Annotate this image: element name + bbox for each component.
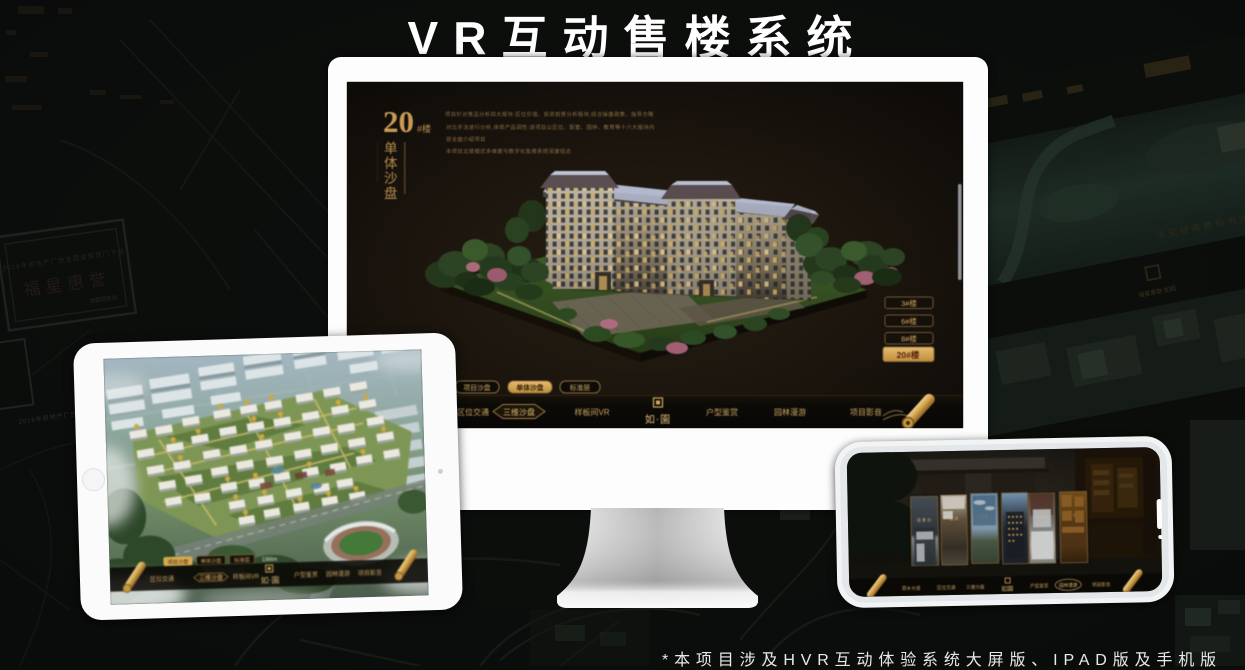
- svg-text:项目影音: 项目影音: [850, 407, 882, 417]
- svg-text:户型鉴赏: 户型鉴赏: [706, 407, 738, 417]
- svg-text:区位交通: 区位交通: [457, 407, 489, 417]
- svg-text:沙: 沙: [384, 171, 398, 186]
- svg-text:样板间VR: 样板间VR: [574, 407, 609, 417]
- svg-text:8#楼: 8#楼: [901, 334, 917, 344]
- svg-text:如園: 如園: [1001, 585, 1013, 593]
- svg-text:#楼: #楼: [417, 123, 431, 134]
- svg-text:如·園: 如·園: [645, 413, 671, 426]
- svg-text:容全面介绍项目: 容全面介绍项目: [446, 135, 486, 143]
- svg-text:本项目文旅模式多维度与数字化售楼系统深度结合: 本项目文旅模式多维度与数字化售楼系统深度结合: [446, 147, 572, 155]
- svg-text:标准层: 标准层: [570, 383, 591, 392]
- svg-text:园林漫游: 园林漫游: [774, 407, 806, 417]
- svg-text:盘: 盘: [384, 185, 398, 201]
- svg-text:1366m: 1366m: [262, 557, 277, 563]
- svg-text:项目针对竞品分析四大版块:区位价值、投资前景分析版块,结合操: 项目针对竞品分析四大版块:区位价值、投资前景分析版块,结合操盘政策、指导方略: [445, 110, 654, 118]
- svg-text:20: 20: [383, 104, 414, 139]
- svg-text:三维沙盘: 三维沙盘: [503, 407, 535, 417]
- svg-text:项目沙盘: 项目沙盘: [463, 383, 490, 392]
- svg-text:对比手法进行分析,体现产品调性;该项目以区位、配套、园林、教: 对比手法进行分析,体现产品调性;该项目以区位、配套、园林、教育等十六大版块内: [446, 123, 655, 131]
- svg-text:3#楼: 3#楼: [901, 298, 917, 308]
- svg-text:如·園: 如·園: [261, 575, 280, 586]
- svg-text:单: 单: [384, 141, 398, 156]
- svg-text:单体沙盘: 单体沙盘: [516, 383, 543, 392]
- svg-text:体: 体: [384, 156, 398, 171]
- svg-text:20#楼: 20#楼: [897, 350, 920, 360]
- svg-text:6#楼: 6#楼: [901, 316, 917, 326]
